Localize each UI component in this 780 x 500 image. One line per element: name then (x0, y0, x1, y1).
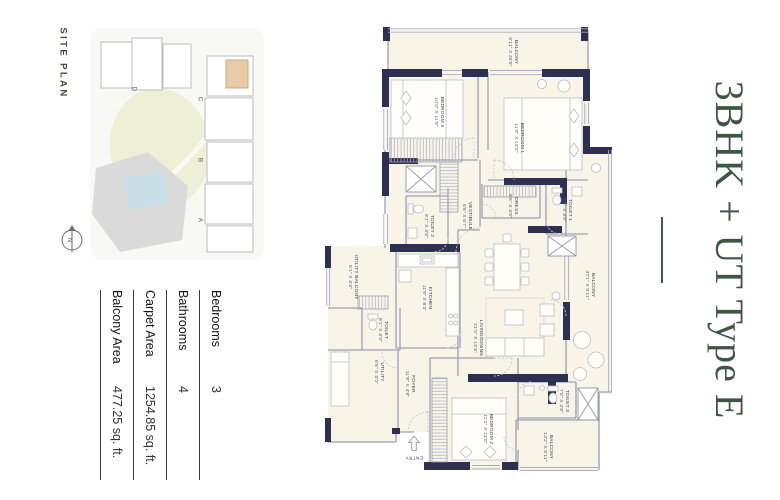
stove-burner (454, 321, 458, 325)
entry-label: ENTRY (405, 456, 423, 461)
room-label-bedroom2: BEDROOM 211'2" X 13'0" (481, 414, 493, 445)
room-label-balcony-right: BALCONY47'1" X 5'11" (583, 270, 595, 299)
room-label-toilet-small: TOILET6'1" X 4'0" (376, 318, 388, 342)
room-label-vestibule: VESTIBULE6'6" X 6'7" (460, 202, 472, 230)
wardrobe-bedroom3 (390, 138, 462, 162)
room-label-living-dining: LIVING/DINING21'0" X 14'4" (471, 320, 483, 356)
washbasin (408, 228, 417, 238)
room-label-bedroom1: BEDROOM 111'0" X 13'0" (512, 123, 524, 154)
spec-row-bedrooms: Bedrooms 3 (199, 290, 232, 480)
north-indicator (62, 225, 82, 252)
tower-label-c: C (197, 97, 204, 102)
spec-row-bathrooms: Bathrooms 4 (166, 290, 199, 480)
spec-label: Balcony Area (110, 290, 124, 386)
room-label-foyer: FOYER11'8" X 4'8" (403, 371, 415, 398)
spec-row-balcony-area: Balcony Area 477.25 sq. ft. (100, 290, 133, 480)
room-label-balcony-bottom: BALCONY13'2" X 5'11" (541, 432, 553, 461)
bed-utility (331, 352, 349, 406)
plant (538, 80, 547, 89)
spec-row-carpet-area: Carpet Area 1254.85 sq. ft. (133, 290, 166, 480)
washbasin (572, 187, 582, 196)
site-plan-graphic (48, 22, 272, 268)
north-label: N (66, 238, 72, 242)
stove-burner (449, 321, 453, 325)
utility-ledge (358, 296, 388, 309)
spec-label: Bathrooms (176, 290, 190, 386)
spec-label: Carpet Area (143, 290, 157, 386)
room-label-toilet2: TOILET 28'1" X 4'8" (422, 214, 434, 238)
tower-label-d: D (131, 87, 138, 92)
service-ladder (440, 162, 458, 212)
geyser (540, 386, 545, 391)
wardrobe-bedroom2 (432, 378, 447, 462)
pouf (558, 80, 570, 92)
site-plan-heading: SITE PLAN (58, 27, 69, 98)
room-label-kitchen: KITCHEN11'8" X 8'0" (420, 285, 432, 312)
room-label-utility-balcony: UTILITY BALCONY5'1" X 4'4" (346, 254, 358, 299)
room-label-bedroom3: BEDROOM 310'0" X 11'0" (432, 97, 444, 128)
tower-label-b: B (197, 158, 204, 163)
page-title: 3BHK + UT Type E (693, 55, 763, 445)
shaft-2 (548, 236, 576, 256)
bed-bedroom3 (391, 80, 463, 138)
title-divider (661, 217, 663, 283)
washbasin (524, 386, 534, 395)
spec-value: 477.25 sq. ft. (110, 386, 124, 458)
shaft-3 (578, 388, 598, 420)
room-label-balcony-top: BALCONY5'11" X 28'8" (506, 37, 518, 66)
tower-label-a: A (197, 218, 204, 223)
spec-value: 1254.85 sq. ft. (143, 386, 157, 465)
room-label-dress: DRESS9'6" X 4'8" (506, 194, 518, 218)
brochure-page: SITE PLAN D C B A N Bedrooms 3 Bathrooms… (0, 0, 780, 500)
spec-value: 4 (176, 386, 190, 393)
stove-burner (449, 314, 453, 318)
highlighted-unit (226, 60, 248, 88)
entry-arrow-icon (409, 436, 420, 451)
specs-table: Bedrooms 3 Bathrooms 4 Carpet Area 1254.… (100, 290, 232, 480)
stove-burner (454, 314, 458, 318)
spec-label: Bedrooms (209, 290, 223, 386)
room-label-utility: UTILITY6'6" X 4'0" (372, 360, 384, 384)
shaft-1 (406, 166, 436, 192)
spec-value: 3 (209, 386, 223, 393)
plant (592, 164, 601, 173)
floor-plan-graphic (322, 22, 616, 480)
room-label-toilet1: TOILET 19'4" X 4'8" (560, 198, 572, 222)
room-label-toilet3: TOILET 37'8" X 4'8" (557, 389, 569, 413)
fridge (399, 270, 411, 282)
bed-bedroom2 (452, 398, 506, 460)
